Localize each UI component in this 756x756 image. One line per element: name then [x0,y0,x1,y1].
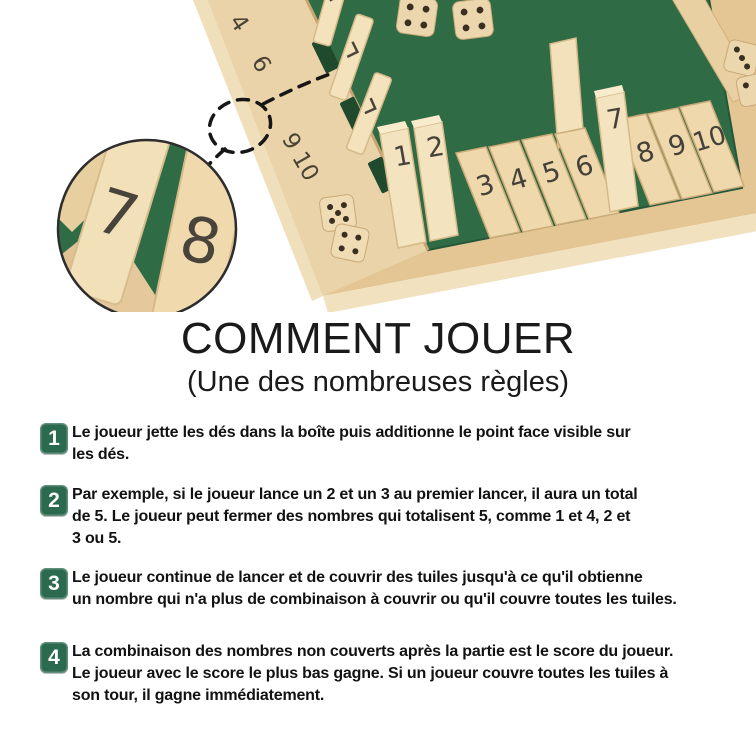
title-block: COMMENT JOUER (Une des nombreuses règles… [0,314,756,401]
step-text-line: Le joueur continue de lancer et de couvr… [72,567,677,589]
step-text: Le joueur continue de lancer et de couvr… [72,567,677,611]
step-text-line: un nombre qui n'a plus de combinaison à … [72,589,677,611]
hero-photo: 4 6 9 10 3 4 5 6 8 9 10 [0,0,756,312]
step-text: Le joueur jette les dés dans la boîte pu… [72,422,631,466]
magnifier-inset: 7 8 [46,112,251,312]
step-text-line: Le joueur avec le score le plus bas gagn… [72,663,673,685]
instruction-steps: 1 Le joueur jette les dés dans la boîte … [0,422,756,707]
die-icon [396,0,439,37]
game-board: 4 6 9 10 3 4 5 6 8 9 10 [183,0,756,312]
page-subtitle: (Une des nombreuses règles) [0,364,756,401]
step-1: 1 Le joueur jette les dés dans la boîte … [40,422,750,466]
step-text: La combinaison des nombres non couverts … [72,641,673,707]
step-3: 3 Le joueur continue de lancer et de cou… [40,567,750,611]
step-number-badge: 2 [40,485,68,516]
step-text-line: de 5. Le joueur peut fermer des nombres … [72,506,638,528]
die-icon [330,223,370,263]
step-text-line: son tour, il gagne immédiatement. [72,685,673,707]
step-number-badge: 3 [40,568,68,599]
step-text-line: Le joueur jette les dés dans la boîte pu… [72,422,631,444]
die-icon [452,0,494,40]
step-4: 4 La combinaison des nombres non couvert… [40,641,750,707]
step-text: Par exemple, si le joueur lance un 2 et … [72,484,638,550]
page-title: COMMENT JOUER [0,314,756,364]
step-text-line: La combinaison des nombres non couverts … [72,641,673,663]
step-2: 2 Par exemple, si le joueur lance un 2 e… [40,484,750,550]
step-text-line: 3 ou 5. [72,528,638,550]
step-number-badge: 4 [40,642,68,673]
step-text-line: Par exemple, si le joueur lance un 2 et … [72,484,638,506]
step-number-badge: 1 [40,423,68,454]
step-text-line: les dés. [72,444,631,466]
